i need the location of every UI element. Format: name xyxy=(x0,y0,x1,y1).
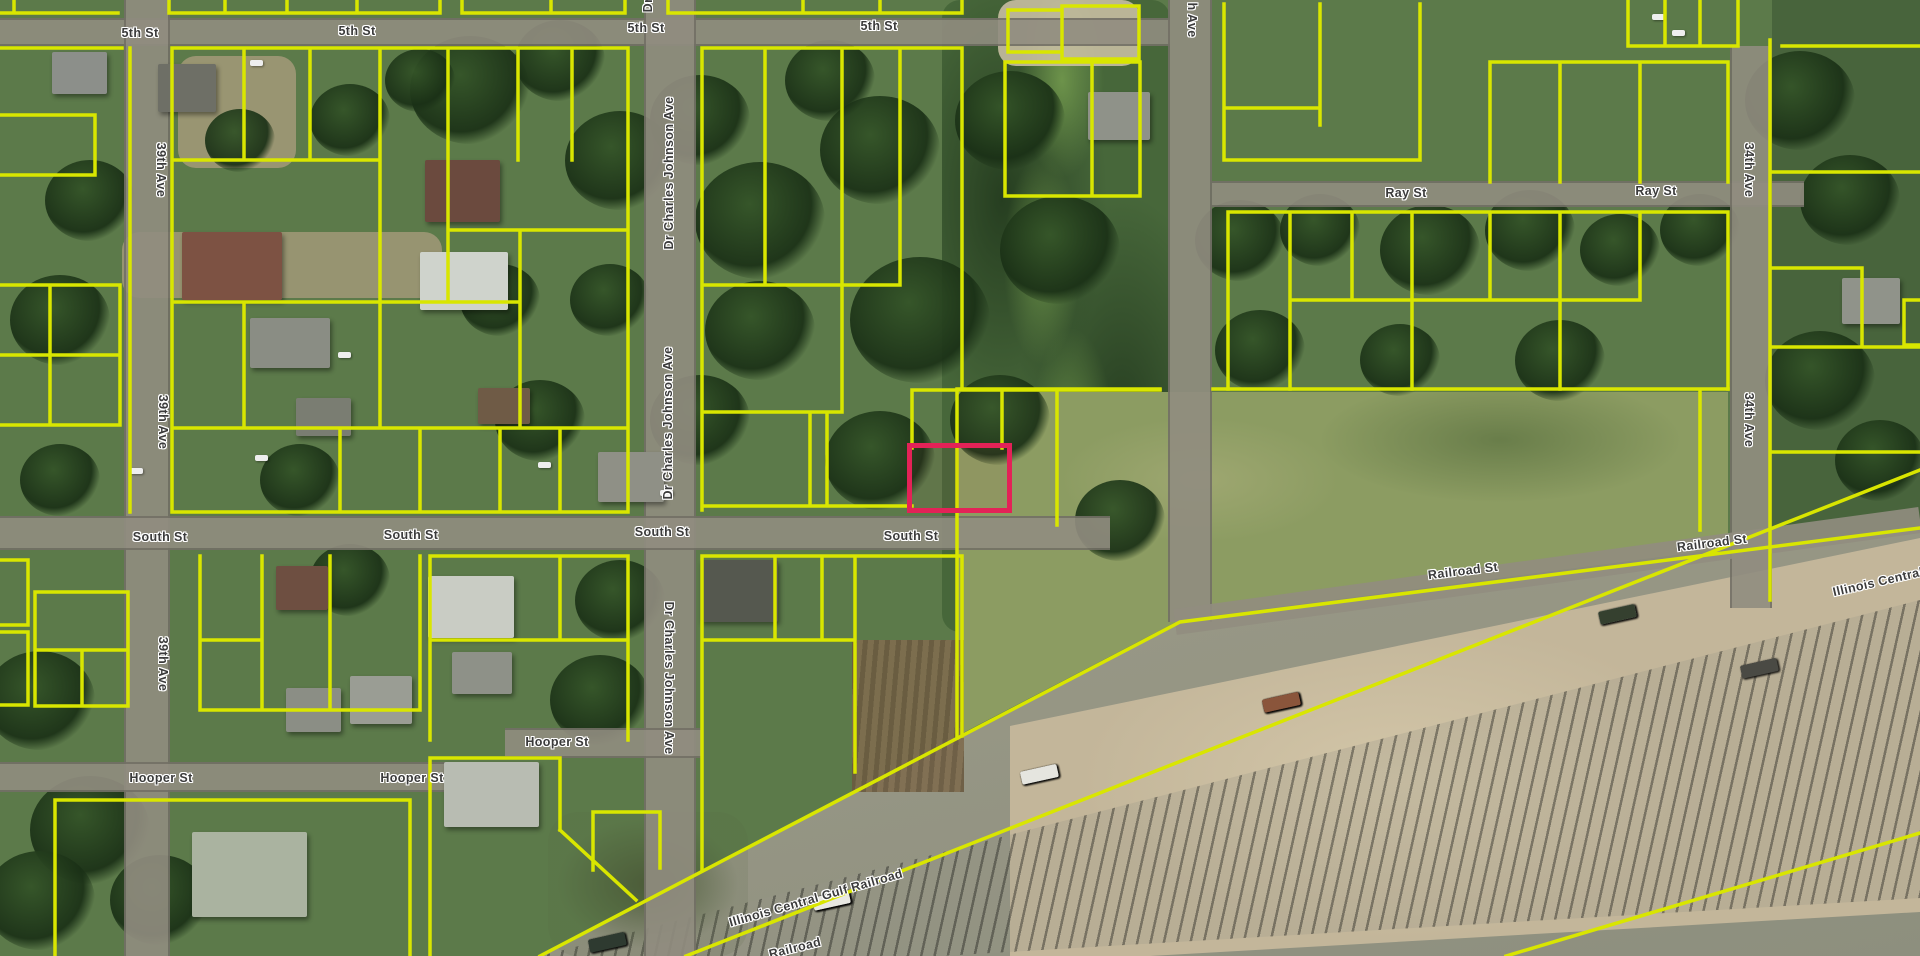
street-label: Ray St xyxy=(1635,184,1676,198)
street-label: Railroad St xyxy=(1427,560,1499,582)
street-label: 39th Ave xyxy=(154,143,168,197)
street-label: South St xyxy=(384,528,439,542)
street-label: 39th Ave xyxy=(156,637,170,691)
street-label: 34th Ave xyxy=(1742,393,1756,447)
street-label: Ray St xyxy=(1385,186,1426,200)
street-label: 5th St xyxy=(338,24,375,38)
street-label: h Ave xyxy=(1185,2,1199,37)
street-label: Railroad xyxy=(767,935,822,956)
street-label-layer: 5th St5th St5th St5th StDr39th Ave39th A… xyxy=(0,0,1920,956)
street-label: Hooper St xyxy=(129,771,192,785)
street-label: Dr xyxy=(641,0,655,12)
map-canvas[interactable]: 5th St5th St5th St5th StDr39th Ave39th A… xyxy=(0,0,1920,956)
street-label: 39th Ave xyxy=(156,395,170,449)
street-label: 5th St xyxy=(121,26,158,40)
street-label: South St xyxy=(133,530,188,544)
street-label: South St xyxy=(635,525,690,539)
street-label: Illinois Central Gulf Railroad xyxy=(728,866,905,929)
street-label: 34th Ave xyxy=(1742,143,1756,197)
street-label: South St xyxy=(884,529,939,543)
street-label: Illinois Central xyxy=(1831,565,1920,599)
street-label: Dr Charles Johnson Ave xyxy=(661,346,675,499)
street-label: 5th St xyxy=(627,21,664,35)
street-label: Dr Charles Johnson Ave xyxy=(662,601,676,754)
street-label: Hooper St xyxy=(380,771,443,785)
street-label: Dr Charles Johnson Ave xyxy=(662,96,676,249)
street-label: Hooper St xyxy=(525,735,588,749)
street-label: 5th St xyxy=(860,19,897,33)
street-label: Railroad St xyxy=(1676,532,1748,554)
